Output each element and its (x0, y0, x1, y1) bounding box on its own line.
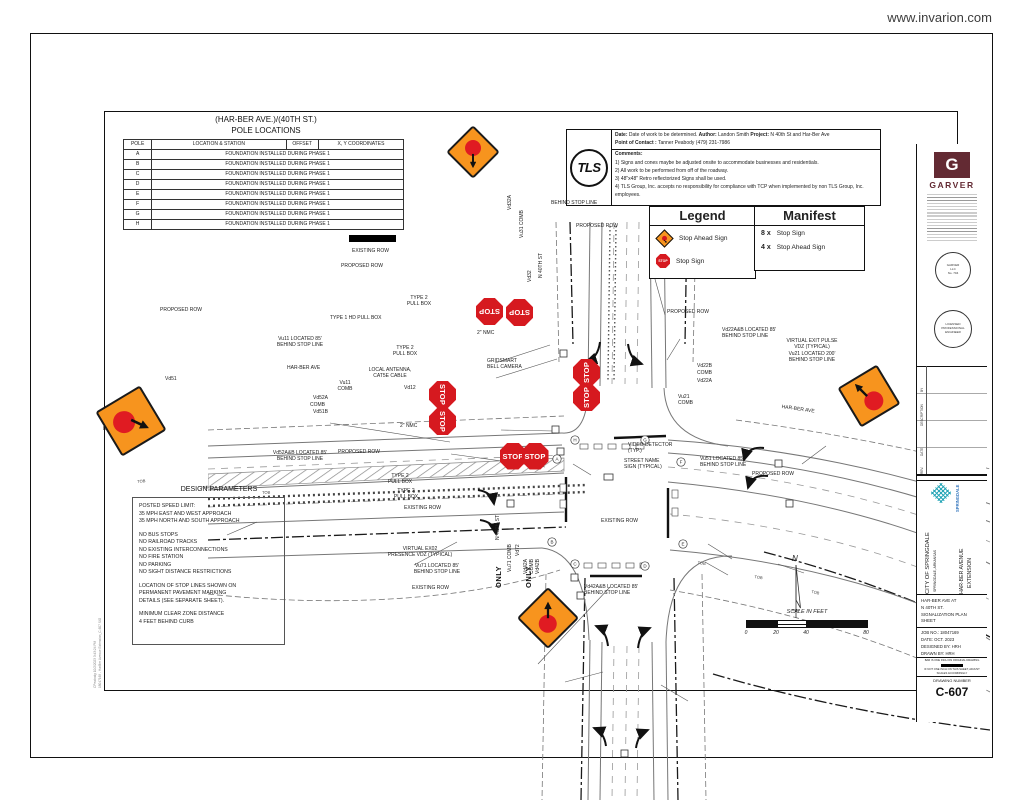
legend-box: Legend Stop Ahead Sign STOP Stop Sign (649, 206, 756, 279)
plot-stamp-line1: CPeabody 10/2/2023 3:43:24 PM (93, 641, 97, 688)
tcp-info-box: TLS Date: Date of work to be determined.… (566, 129, 881, 206)
leader-lines (227, 272, 826, 701)
revision-table (917, 366, 987, 476)
design-parameter-line: 35 MPH NORTH AND SOUTH APPROACH (139, 518, 278, 526)
garver-logo: G (934, 152, 970, 178)
pull-boxes (507, 350, 793, 757)
job-number: JOB NO.: 18047169 (921, 630, 985, 637)
stop-ahead-sign-icon (655, 229, 673, 247)
authorization-seal: GARVERLLCNo. 704 (935, 252, 971, 288)
pole-markers: A B C D E F G H (548, 436, 687, 570)
road-network: A B C D E F G H (208, 222, 990, 800)
scale-tick: 20 (773, 630, 779, 636)
scale-bar-title: SCALE IN FEET (743, 609, 871, 615)
pole-table-row: GFOUNDATION INSTALLED DURING PHASE 1 (124, 209, 404, 219)
revision-header: DESCRIPTION (920, 404, 924, 426)
drawing-number-label: DRAWING NUMBER (917, 678, 987, 683)
seal-text-line: No. 704 (947, 272, 960, 276)
sheet-title-line: SHEET (921, 618, 985, 625)
garver-name: GARVER (917, 180, 987, 190)
tcp-info-header: Date: Date of work to be determined. Aut… (612, 130, 880, 150)
scale-check-note: BAR IS ONE INCH ON ORIGINAL DRAWING IF N… (919, 659, 985, 676)
sheet-title: HAR-BER AVE ATN 40TH ST.SIGNALIZATION PL… (921, 598, 985, 625)
turn-arrows (478, 342, 768, 748)
project-name-line2: EXTENSION (967, 558, 973, 588)
design-parameter-line: POSTED SPEED LIMIT: (139, 503, 278, 511)
svg-text:A: A (555, 457, 558, 462)
springdale-logo-text: SPRINGDALE (955, 485, 960, 512)
sheet-title-line: SIGNALIZATION PLAN (921, 612, 985, 619)
copyright-disclaimer-text (927, 194, 977, 242)
design-parameter-line: NO FIRE STATION (139, 554, 278, 562)
design-parameter-line: NO PARKING (139, 562, 278, 570)
design-parameter-line: NO RAILROAD TRACKS (139, 539, 278, 547)
property-lines (208, 222, 990, 800)
scale-bar-graphic (746, 620, 868, 628)
one-inch-bar (941, 664, 963, 667)
revision-header: DATE (920, 448, 924, 456)
signal-boxes (560, 444, 678, 568)
legend-item-stop-ahead: Stop Ahead Sign (650, 226, 755, 250)
stop-sign-icon: STOP (656, 254, 670, 268)
design-parameter-line: 4 FEET BEHIND CURB (139, 619, 278, 627)
plot-stamp-line2: 18047169 - HarBer Avenue Extension_C-607… (98, 618, 102, 688)
drawing-number: C-607 (917, 685, 987, 699)
xy-col-header: X, Y COORDINATES (318, 139, 403, 149)
design-parameter-line: 35 MPH EAST AND WEST APPROACH (139, 511, 278, 519)
comment-line: 4) TLS Group, Inc. accepts no responsibi… (615, 183, 877, 199)
pole-table-row: CFOUNDATION INSTALLED DURING PHASE 1 (124, 169, 404, 179)
design-parameter-line: LOCATION OF STOP LINES SHOWN ON (139, 583, 278, 591)
job-info: JOB NO.: 18047169 DATE: OCT. 2023 DESIGN… (921, 630, 985, 658)
road-edges (208, 222, 990, 800)
design-parameter-line: NO EXISTING INTERCONNECTIONS (139, 547, 278, 555)
manifest-title: Manifest (755, 207, 864, 226)
manifest-box: Manifest 8 x Stop Sign 4 x Stop Ahead Si… (754, 206, 865, 271)
svg-text:N: N (792, 554, 798, 563)
svg-text:B: B (550, 540, 553, 545)
pole-table-row: BFOUNDATION INSTALLED DURING PHASE 1 (124, 159, 404, 169)
svg-text:F: F (680, 460, 683, 465)
revision-header: REV. (920, 467, 924, 474)
row-lines (208, 222, 990, 800)
comment-line: 3) 48"x48" Retro reflectorized Signs sha… (615, 175, 877, 183)
revision-header: BY (920, 388, 924, 392)
lane-lines (208, 222, 990, 800)
stop-bars (566, 436, 668, 576)
project-name-line1: HAR-BER AVENUE (959, 549, 965, 594)
seal-text-line: ENGINEER (941, 331, 964, 335)
svg-text:E: E (681, 542, 684, 547)
tcp-comments: Comments: 1) Signs and cones maybe be ad… (612, 150, 880, 200)
manifest-item: 8 x Stop Sign (755, 226, 864, 240)
comment-line: 1) Signs and cones maybe be adjusted ons… (615, 159, 877, 167)
pole-table-subtitle: POLE LOCATIONS (123, 126, 409, 137)
title-block: G GARVER GARVERLLCNo. 704 LICENSEDPROFES… (916, 144, 986, 722)
pole-locations-table: (HAR-BER AVE.)/(40TH ST.) POLE LOCATIONS… (123, 115, 409, 230)
design-parameter-line: PERMANENT PAVEMENT MARKING (139, 590, 278, 598)
scale-tick: 40 (803, 630, 809, 636)
legend-item-stop: STOP Stop Sign (650, 250, 755, 271)
scale-tick: 80 (863, 630, 869, 636)
design-parameter-line: MINIMUM CLEAR ZONE DISTANCE (139, 611, 278, 619)
sheet-title-line: N 40TH ST. (921, 605, 985, 612)
comment-line: 2) All work to be performed from off of … (615, 167, 877, 175)
design-parameters-title: DESIGN PARAMETERS (153, 486, 285, 493)
legend-item-label: Stop Sign (676, 258, 704, 265)
pole-table-row: EFOUNDATION INSTALLED DURING PHASE 1 (124, 189, 404, 199)
pole-col-header: POLE (124, 139, 152, 149)
pole-table-row: AFOUNDATION INSTALLED DURING PHASE 1 (124, 149, 404, 159)
design-parameter-line: DETAILS (SEE SEPARATE SHEET). (139, 598, 278, 606)
scale-bar: SCALE IN FEET 0204080 (743, 609, 871, 639)
scale-tick: 0 (745, 630, 748, 636)
svg-text:H: H (573, 438, 576, 443)
legend-title: Legend (650, 207, 755, 226)
svg-text:G: G (643, 438, 647, 443)
location-col-header: LOCATION & STATION (152, 139, 286, 149)
pole-table-row: DFOUNDATION INSTALLED DURING PHASE 1 (124, 179, 404, 189)
engineer-seal: LICENSEDPROFESSIONALENGINEER (934, 310, 972, 348)
revision-table-divider (926, 366, 927, 474)
client-location: SPRINGDALE, ARKANSAS (933, 550, 937, 592)
sheet-date: DATE: OCT. 2023 (921, 637, 985, 644)
pole-table-row: HFOUNDATION INSTALLED DURING PHASE 1 (124, 219, 404, 229)
pole-table-row: FFOUNDATION INSTALLED DURING PHASE 1 (124, 199, 404, 209)
design-parameters-box: POSTED SPEED LIMIT:35 MPH EAST AND WEST … (132, 497, 285, 645)
offset-col-header: OFFSET (286, 139, 318, 149)
design-parameter-line: NO SIGHT DISTANCE RESTRICTIONS (139, 569, 278, 577)
sheet-title-line: HAR-BER AVE AT (921, 598, 985, 605)
sheet-border: A B C D E F G H N (HAR-BER AVE.)/(40TH S… (30, 33, 993, 758)
invarion-watermark-link[interactable]: www.invarion.com (887, 10, 992, 25)
springdale-logo (930, 482, 952, 504)
client-name: CITY OF SPRINGDALE (925, 532, 931, 594)
tls-logo: TLS (567, 130, 612, 205)
manifest-item: 4 x Stop Ahead Sign (755, 240, 864, 254)
legend-item-label: Stop Ahead Sign (679, 235, 727, 242)
pole-table-title: (HAR-BER AVE.)/(40TH ST.) (123, 115, 409, 126)
match-line-bar (349, 235, 396, 242)
design-parameter-line: NO BUS STOPS (139, 532, 278, 540)
designed-by: DESIGNED BY: HRH (921, 644, 985, 651)
